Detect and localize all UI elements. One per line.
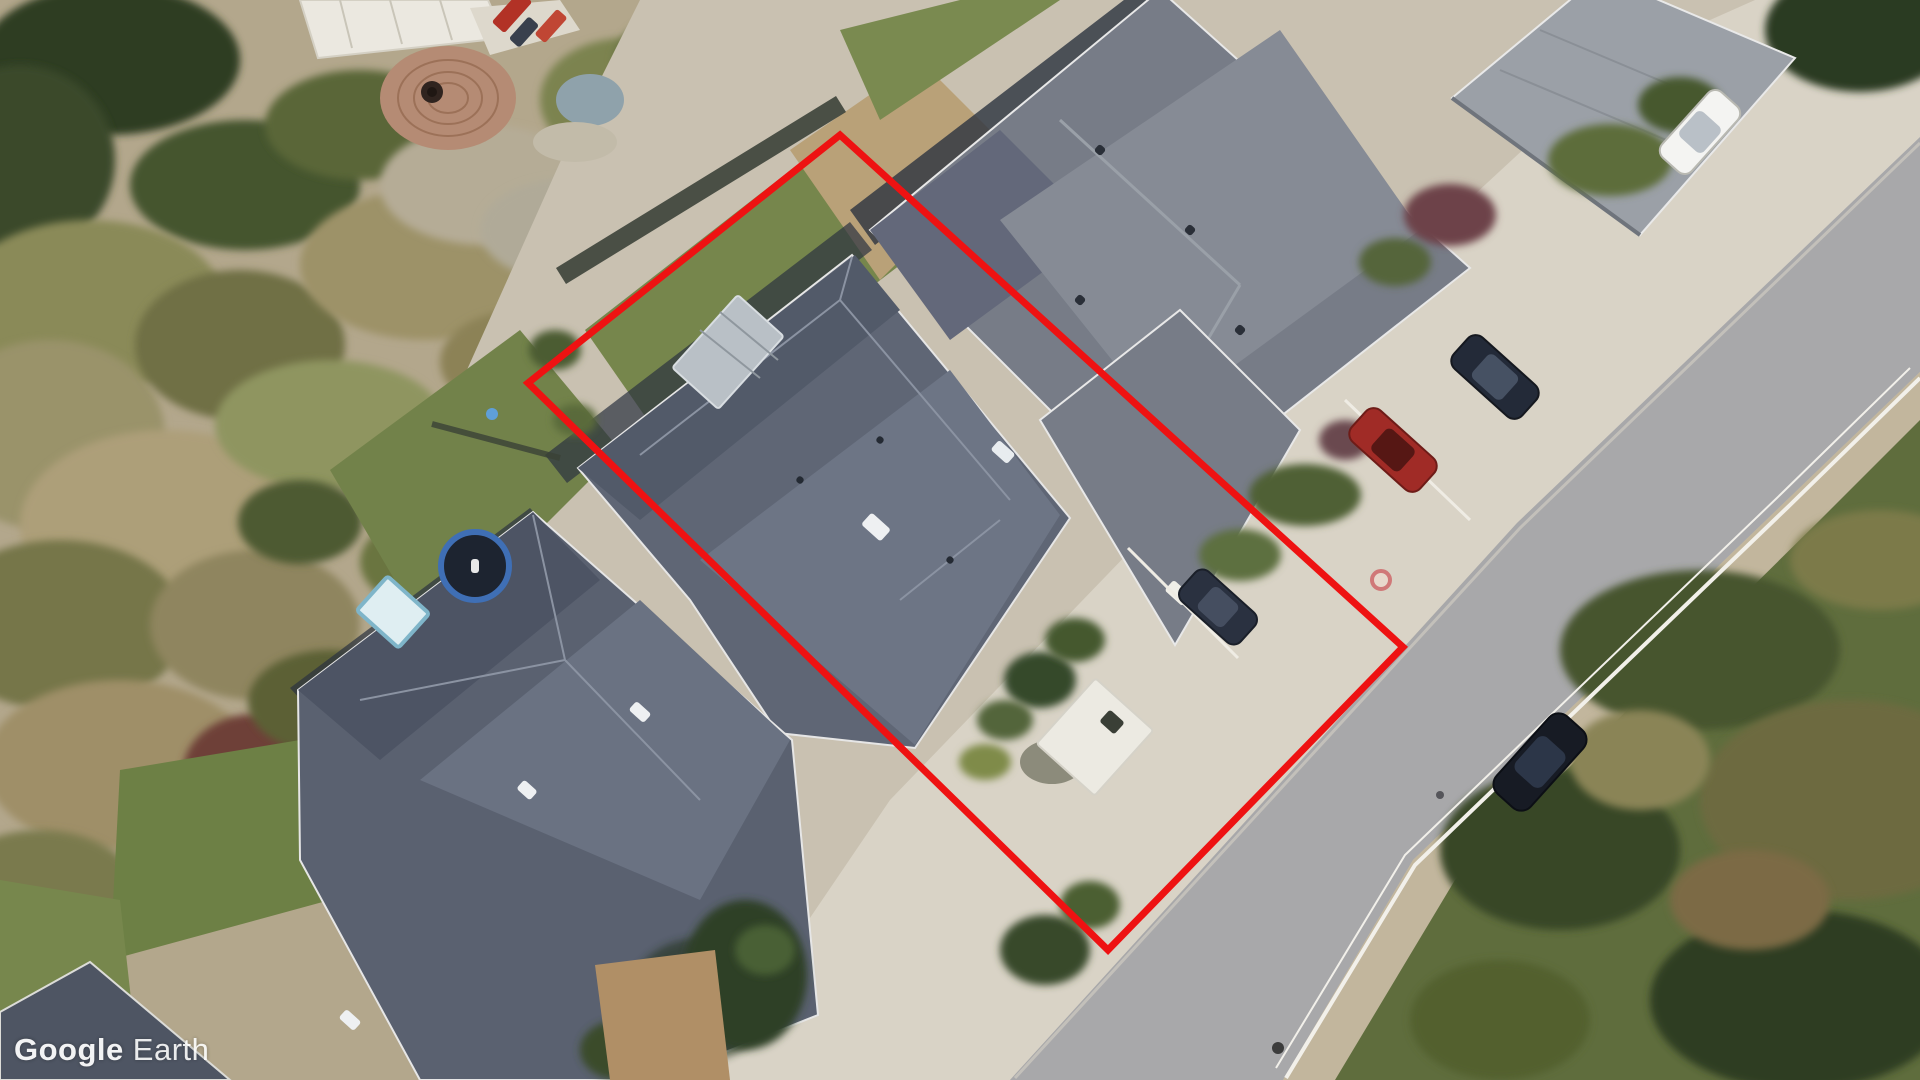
shrub [1570, 710, 1710, 810]
hedge [1359, 238, 1431, 286]
fire-pit-center [427, 87, 437, 97]
manhole [1436, 791, 1444, 799]
shrub [977, 700, 1033, 740]
shrub [959, 744, 1011, 780]
google-earth-watermark: GoogleEarth [14, 1032, 209, 1068]
blue-object [486, 408, 498, 420]
shrub [1045, 618, 1105, 662]
street-tree-highlight [735, 925, 795, 975]
brick-patio [380, 46, 516, 150]
trampoline-pad [471, 559, 479, 573]
hedge [1548, 124, 1672, 196]
rockery [533, 122, 617, 162]
google-earth-viewport: GoogleEarth [0, 0, 1920, 1080]
watermark-product: Earth [133, 1032, 210, 1067]
dirt-patch [595, 950, 730, 1080]
manhole [1272, 1042, 1284, 1054]
shrub [1410, 960, 1590, 1080]
hedge [1249, 464, 1361, 526]
shrub [1060, 881, 1120, 929]
utility-marking [1372, 571, 1390, 589]
terrain-and-buildings [0, 0, 1920, 1080]
garden-pond [556, 74, 624, 126]
satellite-aerial-image [0, 0, 1920, 1080]
watermark-brand: Google [14, 1032, 124, 1067]
maroon-tree [1404, 184, 1496, 246]
dry-brush [1670, 850, 1830, 950]
